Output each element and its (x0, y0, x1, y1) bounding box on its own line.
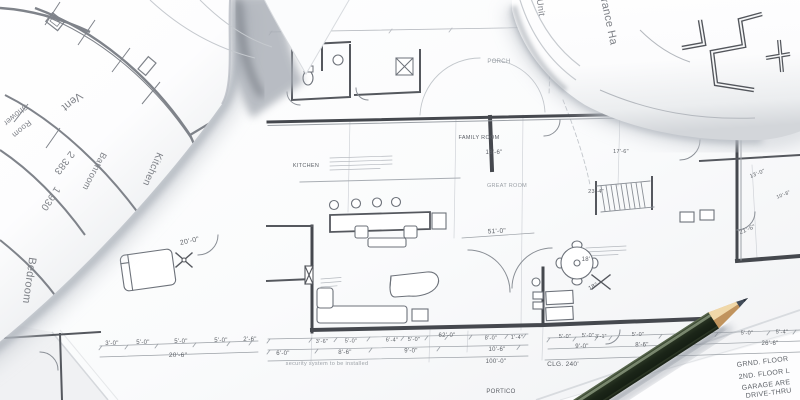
label: 6'-4" (386, 338, 398, 344)
shower (396, 58, 413, 75)
label: 5'-0" (345, 339, 357, 345)
sink (333, 55, 343, 65)
label: 2'-6" (243, 337, 256, 343)
label: 5'-0" (632, 332, 644, 338)
label: 9'-0" (404, 349, 417, 355)
label: 5'-0" (582, 333, 594, 339)
range (432, 213, 446, 229)
label: 3'-0" (105, 341, 118, 347)
fireplace (305, 266, 313, 284)
label: 5'-0" (741, 331, 753, 337)
label: 3'-1" (595, 334, 606, 340)
label: GREAT ROOM (487, 183, 527, 189)
label: security system to be installed (286, 361, 369, 367)
blueprint-photo-svg: PORCHFAMILY ROOM18'-6"GREAT ROOMKITCHEN1… (0, 0, 800, 400)
label: PORTICO (486, 389, 515, 395)
label: 9'-0" (575, 344, 588, 350)
label: 18'-6" (485, 150, 502, 156)
toilet (303, 71, 313, 85)
armchair (355, 226, 368, 238)
label: 100'-0" (486, 359, 507, 365)
label: 23'-4" (588, 189, 604, 195)
label: 5'-0" (174, 339, 187, 345)
label: 5'-0" (559, 334, 571, 340)
label: 17'-6" (613, 149, 629, 155)
label: 5'-4" (776, 330, 788, 336)
sectional-sofa-corner (317, 288, 333, 308)
label: FAMILY ROOM (459, 135, 500, 141)
label: 18' (582, 257, 591, 263)
label: PORCH (487, 59, 510, 65)
label: 6'-0" (276, 351, 289, 357)
label: KITCHEN (293, 163, 319, 169)
blueprint-photo: PORCHFAMILY ROOM18'-6"GREAT ROOMKITCHEN1… (0, 0, 800, 400)
label: 26'-6" (761, 341, 778, 347)
label: CLG. 240' (547, 361, 579, 368)
label: 1'-4" (511, 335, 523, 341)
bed (120, 249, 177, 292)
label: 5'-0" (408, 337, 420, 343)
sofa (368, 238, 406, 247)
label: 51'-0" (488, 228, 507, 236)
coffee-table (412, 309, 428, 321)
label: 5'-0" (214, 338, 227, 344)
label: 3'-6" (316, 339, 328, 345)
label: 8'-6" (635, 343, 648, 349)
label: 8'-6" (338, 350, 351, 356)
label: 62'-0" (438, 333, 455, 339)
label: 5'-0" (136, 340, 149, 346)
label: 8'-0" (485, 336, 497, 342)
label: 10'-6" (488, 347, 505, 353)
sectional-sofa (317, 306, 407, 323)
label: 20'-6" (169, 352, 188, 359)
armchair (404, 226, 417, 238)
